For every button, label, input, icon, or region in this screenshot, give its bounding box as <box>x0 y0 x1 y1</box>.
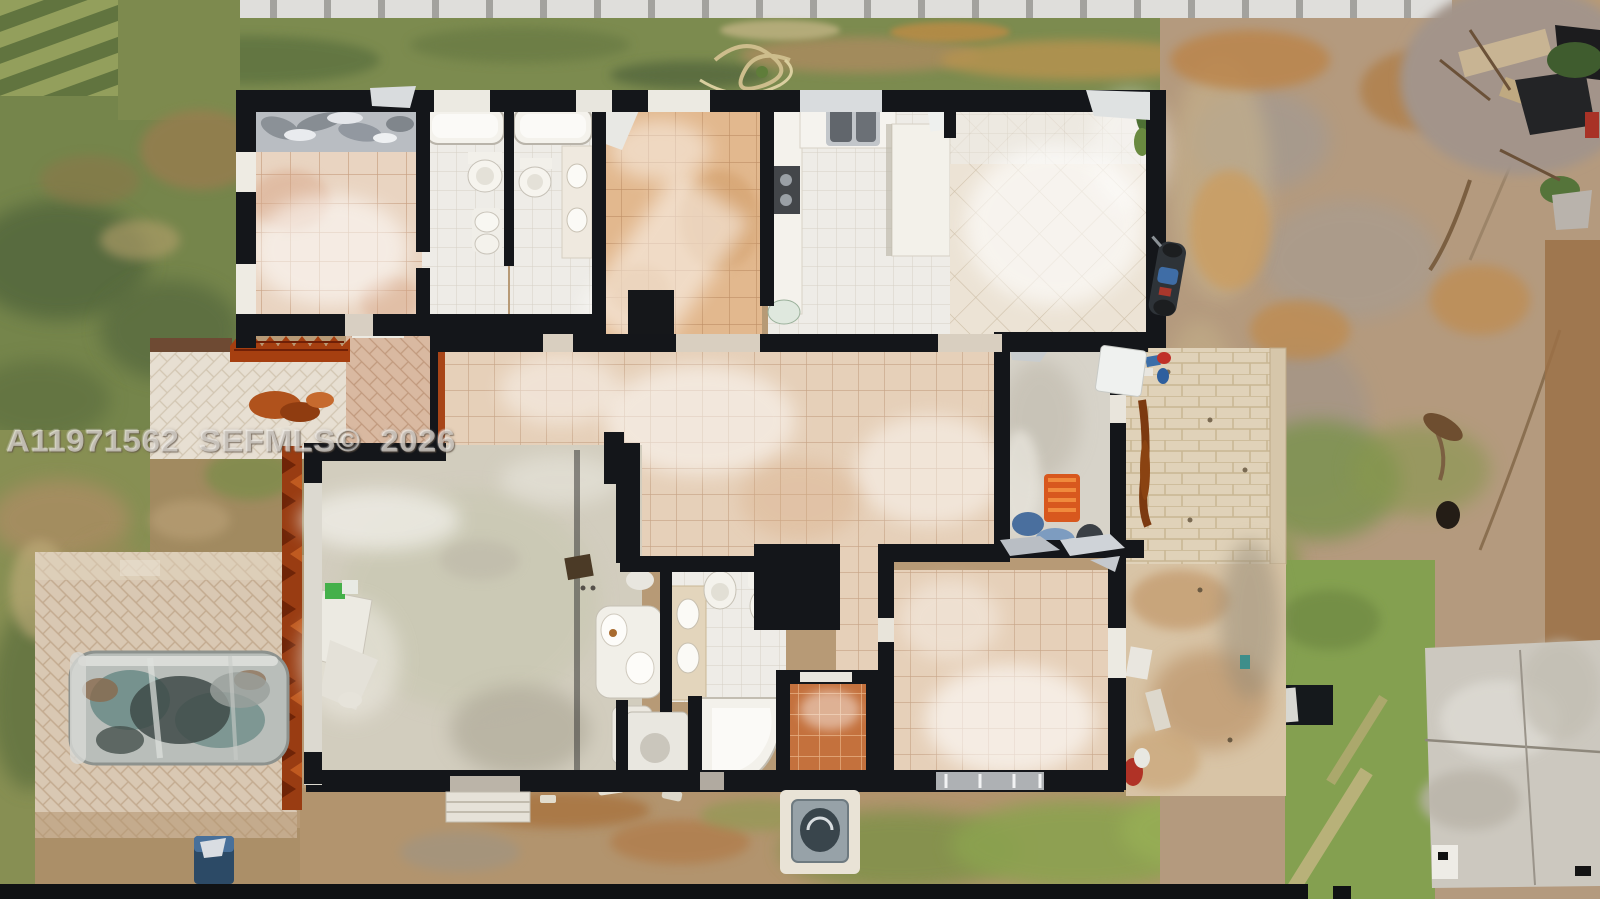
sink-basin <box>567 164 587 188</box>
wall-stub <box>628 290 674 338</box>
door-opening <box>676 334 760 352</box>
window-gap <box>800 90 882 112</box>
great-room-west-wall <box>304 443 322 785</box>
red-debris <box>306 392 334 408</box>
south-concrete-patio <box>1120 540 1286 796</box>
cooktop <box>772 166 800 214</box>
bottom-black-bit <box>1333 886 1351 899</box>
blue-debris <box>1012 512 1044 536</box>
dark-debris <box>564 554 593 580</box>
right-edge-leaves <box>1545 240 1600 660</box>
family-room <box>950 90 1170 340</box>
window-gap <box>236 264 256 314</box>
framing-line <box>574 450 580 780</box>
vanity-counter <box>562 146 592 258</box>
bottom-right-grass <box>1280 560 1435 899</box>
foil-mattress-debris <box>253 108 420 152</box>
porch-steps <box>446 792 530 822</box>
ac-unit-pad <box>780 790 860 874</box>
sink-basin <box>677 599 699 629</box>
bottom-black-band <box>0 884 1308 899</box>
window-gap <box>576 90 612 112</box>
kitchen-peninsula <box>892 124 950 256</box>
door-gap <box>345 314 373 336</box>
door-gap <box>543 334 573 352</box>
kitchen <box>768 94 956 338</box>
door-gap <box>450 776 520 792</box>
aerial-photo: A11971562 SEFMLS© 2026 <box>0 0 1600 899</box>
bedroom-3 <box>892 570 1114 788</box>
scan-glare <box>925 665 1095 775</box>
bathroom-1 <box>422 106 508 336</box>
door-opening <box>938 334 1002 352</box>
great-room <box>300 445 642 785</box>
window-gap <box>1110 395 1126 423</box>
concrete-slab <box>1420 640 1600 888</box>
sliding-door-frame <box>936 772 1044 790</box>
dark-box-on-grass <box>1282 685 1333 725</box>
door-gap <box>1108 628 1126 678</box>
door-gap <box>700 772 724 790</box>
wrecked-car <box>70 652 288 764</box>
window-gap <box>434 90 490 112</box>
sink-basin <box>677 643 699 673</box>
window-gap <box>648 90 710 112</box>
bedroom-2 <box>579 106 762 360</box>
corner-debris <box>1086 90 1150 120</box>
window-gap <box>236 152 256 192</box>
appliance-debris <box>1095 345 1147 397</box>
entry-courtyard <box>150 326 464 459</box>
sink-basin <box>567 208 587 232</box>
scan-glare <box>252 195 408 305</box>
teal-debris <box>1240 655 1250 669</box>
floor-stain <box>450 685 590 775</box>
door-gap <box>800 672 852 682</box>
east-paver-patio <box>1126 348 1286 564</box>
trash-bin <box>194 836 234 884</box>
rust-gutter-strip <box>282 446 302 810</box>
orange-tile-room <box>788 684 872 784</box>
bedroom-1 <box>250 106 422 336</box>
fence-board <box>150 338 232 352</box>
door-gap <box>878 618 894 642</box>
